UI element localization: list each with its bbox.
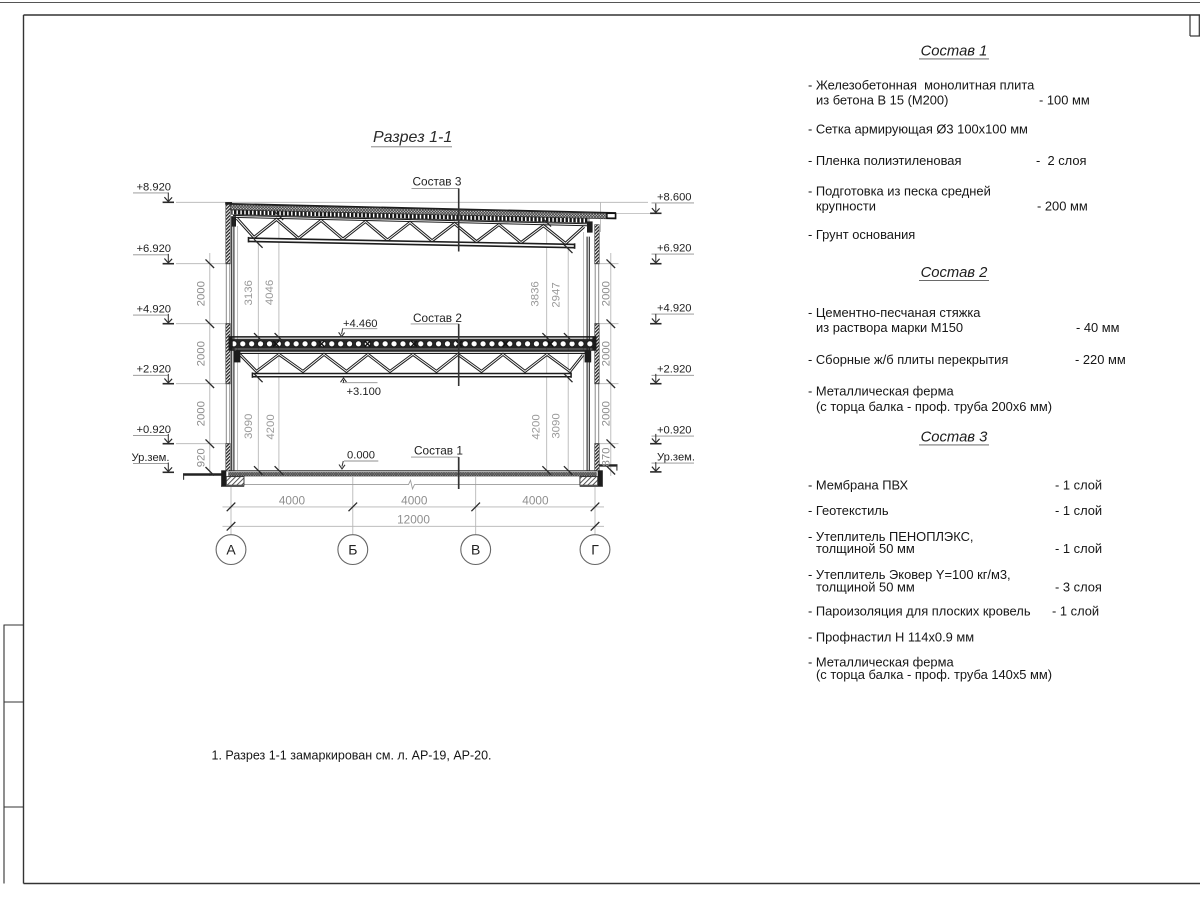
svg-text:(с торца балка - проф. труба 2: (с торца балка - проф. труба 200х6 мм) [816, 399, 1052, 414]
svg-text:- Подготовка из песка средней: - Подготовка из песка средней [808, 184, 991, 199]
svg-text:2000: 2000 [601, 281, 613, 306]
svg-text:2000: 2000 [601, 341, 613, 366]
svg-text:Состав 2: Состав 2 [413, 311, 462, 325]
svg-text:+0.920: +0.920 [137, 424, 172, 436]
svg-text:4000: 4000 [401, 493, 428, 507]
svg-text:- Сборные ж/б плиты перекрытия: - Сборные ж/б плиты перекрытия [808, 352, 1008, 367]
svg-text:3836: 3836 [530, 281, 542, 306]
svg-text:Г: Г [591, 542, 599, 558]
svg-text:- 1 слой: - 1 слой [1052, 604, 1099, 619]
svg-text:2947: 2947 [551, 282, 563, 307]
svg-text:- 40 мм: - 40 мм [1076, 320, 1120, 335]
svg-text:крупности: крупности [816, 199, 876, 214]
svg-text:- 220 мм: - 220 мм [1075, 352, 1126, 367]
svg-text:+4.920: +4.920 [657, 303, 692, 315]
svg-text:толщиной 50 мм: толщиной 50 мм [816, 541, 915, 556]
svg-text:4000: 4000 [279, 493, 306, 507]
svg-text:толщиной 50 мм: толщиной 50 мм [816, 580, 915, 595]
svg-text:из раствора марки М150: из раствора марки М150 [816, 320, 963, 335]
svg-text:из бетона В 15 (М200): из бетона В 15 (М200) [816, 93, 948, 108]
svg-text:+8.920: +8.920 [137, 181, 172, 193]
svg-text:+3.100: +3.100 [347, 386, 382, 398]
svg-text:920: 920 [195, 448, 207, 467]
svg-text:Состав 3: Состав 3 [413, 175, 462, 189]
svg-text:Состав 3: Состав 3 [921, 430, 989, 446]
svg-text:- 1 слой: - 1 слой [1055, 541, 1102, 556]
svg-text:Б: Б [348, 542, 357, 558]
svg-text:А: А [226, 542, 236, 558]
svg-text:- Металлическая ферма: - Металлическая ферма [808, 384, 954, 399]
svg-text:+2.920: +2.920 [657, 364, 692, 376]
svg-text:3136: 3136 [243, 280, 255, 305]
svg-text:Ур.зем.: Ур.зем. [132, 452, 170, 464]
svg-text:(с торца балка - проф. труба 1: (с торца балка - проф. труба 140х5 мм) [816, 667, 1052, 682]
svg-text:+6.920: +6.920 [137, 243, 172, 255]
svg-text:- Цементно-песчаная стяжка: - Цементно-песчаная стяжка [808, 305, 981, 320]
svg-text:+6.920: +6.920 [657, 243, 692, 255]
svg-text:- Геотекстиль: - Геотекстиль [808, 503, 889, 518]
svg-text:+4.920: +4.920 [137, 304, 172, 316]
svg-text:Разрез 1-1: Разрез 1-1 [373, 129, 452, 146]
svg-text:- Мембрана ПВХ: - Мембрана ПВХ [808, 478, 909, 493]
svg-text:Состав 1: Состав 1 [414, 443, 463, 457]
svg-text:- 1 слой: - 1 слой [1055, 478, 1102, 493]
svg-text:2000: 2000 [195, 341, 207, 366]
svg-text:+8.600: +8.600 [657, 191, 692, 203]
svg-text:4046: 4046 [264, 280, 276, 305]
svg-text:870: 870 [601, 447, 613, 466]
svg-text:- 200 мм: - 200 мм [1037, 199, 1088, 214]
svg-text:3090: 3090 [243, 414, 255, 439]
svg-text:- 100 мм: - 100 мм [1039, 93, 1090, 108]
svg-text:- Грунт основания: - Грунт основания [808, 227, 915, 242]
svg-text:- Профнастил Н 114х0.9 мм: - Профнастил Н 114х0.9 мм [808, 630, 974, 645]
svg-text:Ур.зем.: Ур.зем. [657, 452, 695, 464]
svg-text:- 3 слоя: - 3 слоя [1055, 580, 1102, 595]
svg-text:Состав 2: Состав 2 [921, 265, 989, 281]
svg-text:2000: 2000 [195, 401, 207, 426]
svg-text:2000: 2000 [601, 401, 613, 426]
svg-text:2000: 2000 [195, 281, 207, 306]
svg-text:+0.920: +0.920 [657, 425, 692, 437]
svg-text:+4.460: +4.460 [343, 318, 378, 330]
svg-text:3090: 3090 [551, 413, 563, 438]
svg-text:Состав 1: Состав 1 [921, 44, 988, 60]
svg-text:- Сетка армирующая Ø3 100х100: - Сетка армирующая Ø3 100х100 мм [808, 122, 1028, 137]
svg-text:4000: 4000 [522, 493, 549, 507]
svg-text:- Пленка полиэтиленовая: - Пленка полиэтиленовая [808, 153, 961, 168]
svg-text:0.000: 0.000 [347, 450, 375, 462]
svg-text:- 1 слой: - 1 слой [1055, 503, 1102, 518]
svg-text:12000: 12000 [397, 513, 430, 527]
svg-text:- Пароизоляция для плоских кро: - Пароизоляция для плоских кровель [808, 604, 1031, 619]
svg-text:4200: 4200 [265, 414, 277, 439]
svg-text:- Железобетонная монолитная п: - Железобетонная монолитная плита [808, 78, 1035, 93]
svg-text:+2.920: +2.920 [137, 364, 172, 376]
svg-text:4200: 4200 [531, 414, 543, 439]
svg-text:1. Разрез 1-1 замаркирован см.: 1. Разрез 1-1 замаркирован см. л. АР-19,… [212, 749, 492, 763]
svg-text:- 2 слоя: - 2 слоя [1036, 153, 1086, 168]
svg-text:В: В [471, 542, 480, 558]
